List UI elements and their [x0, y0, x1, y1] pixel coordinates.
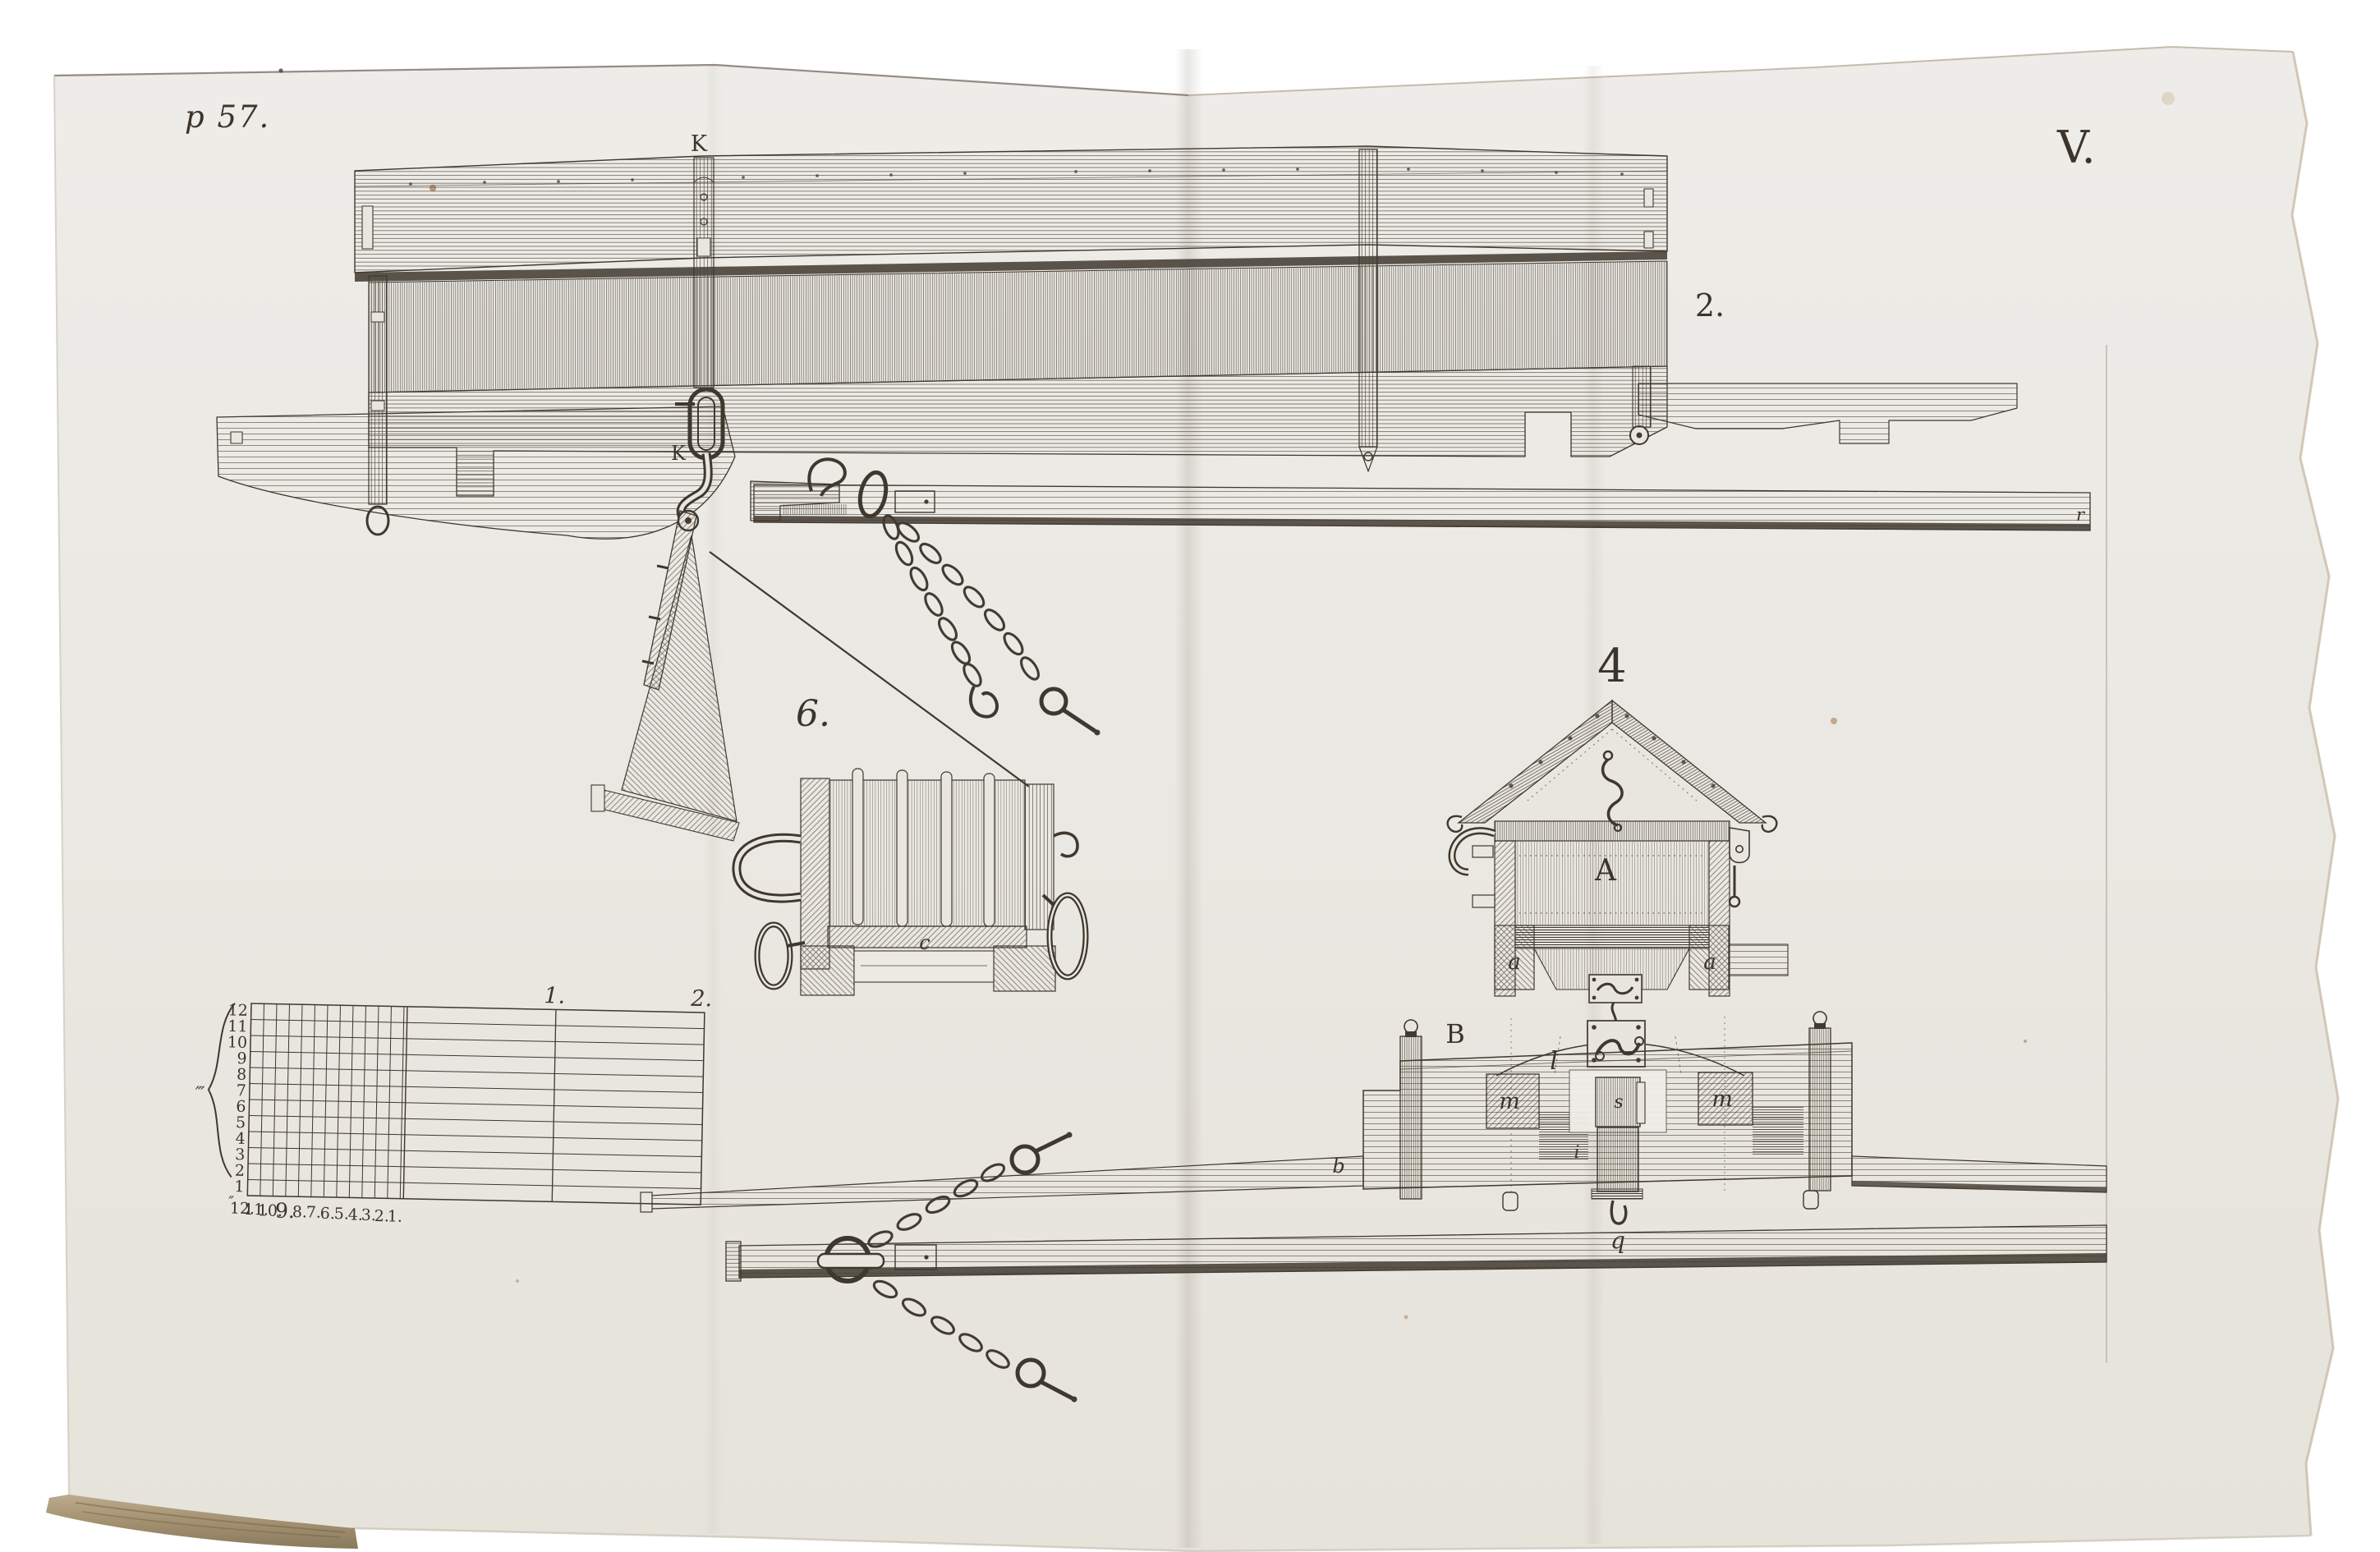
- label-b-pole: b: [1332, 1155, 1344, 1178]
- label-m-left: m: [1499, 1089, 1520, 1114]
- svg-text:8.: 8.: [292, 1203, 308, 1221]
- svg-text:1.: 1.: [388, 1207, 403, 1225]
- label-K-hook: K: [671, 442, 687, 465]
- label-m-right: m: [1711, 1086, 1733, 1112]
- label-l-link: l: [1550, 1047, 1558, 1076]
- ruler-feet-mark: ‴: [195, 1084, 205, 1104]
- plate-number: V.: [2056, 122, 2096, 173]
- ruler-top-mark-1: 1.: [544, 983, 565, 1009]
- svg-text:5.: 5.: [334, 1205, 350, 1223]
- svg-text:6.: 6.: [320, 1205, 336, 1223]
- label-a-right: a: [1703, 950, 1716, 975]
- label-fig6: 6.: [796, 693, 830, 735]
- svg-text:7.: 7.: [306, 1203, 322, 1221]
- label-a-left: a: [1508, 950, 1521, 975]
- page-reference: p 57.: [185, 99, 270, 135]
- label-fig4: 4: [1597, 640, 1627, 693]
- svg-text:1: 1: [234, 1178, 245, 1196]
- label-fig2: 2.: [1695, 287, 1725, 324]
- label-part-c: c: [919, 931, 930, 954]
- ruler-top-mark-2: 2.: [690, 986, 712, 1012]
- label-K-strap: K: [691, 131, 708, 157]
- engraved-plate: p 57. V.: [0, 0, 2380, 1552]
- photo-of-engraved-plate: p 57. V.: [0, 0, 2380, 1552]
- label-hopper-A: A: [1594, 854, 1617, 888]
- label-B-body: B: [1445, 1018, 1465, 1049]
- label-s-slide: s: [1614, 1092, 1623, 1113]
- label-i-pin: i: [1574, 1142, 1580, 1162]
